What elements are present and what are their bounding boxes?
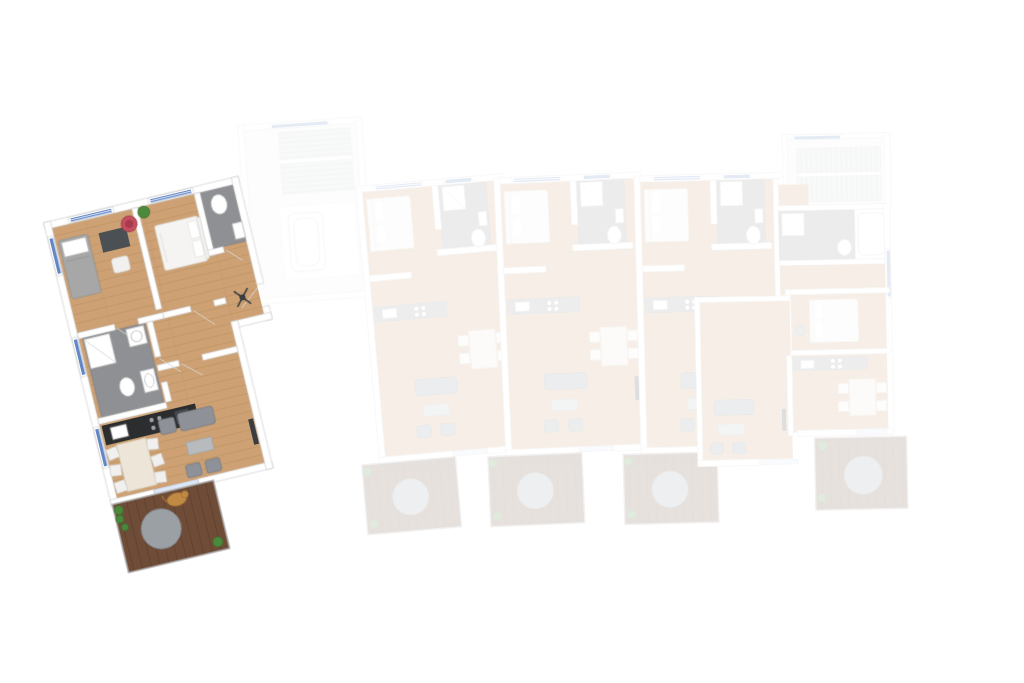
faded-building (238, 117, 908, 535)
floor-plan-stage (0, 0, 1024, 683)
sliding-door (760, 459, 798, 464)
floor-plan-canvas (0, 0, 1024, 683)
washing-machine (126, 325, 148, 347)
utility-room (279, 201, 360, 280)
double-bed (810, 299, 859, 342)
armchair (158, 417, 177, 435)
staircase (278, 128, 354, 195)
stool (795, 325, 805, 335)
hall-floor (780, 264, 886, 292)
sliding-door (856, 429, 886, 434)
living-room-floor (700, 301, 793, 461)
balcony (814, 436, 907, 510)
kitchen-counter (793, 356, 867, 371)
